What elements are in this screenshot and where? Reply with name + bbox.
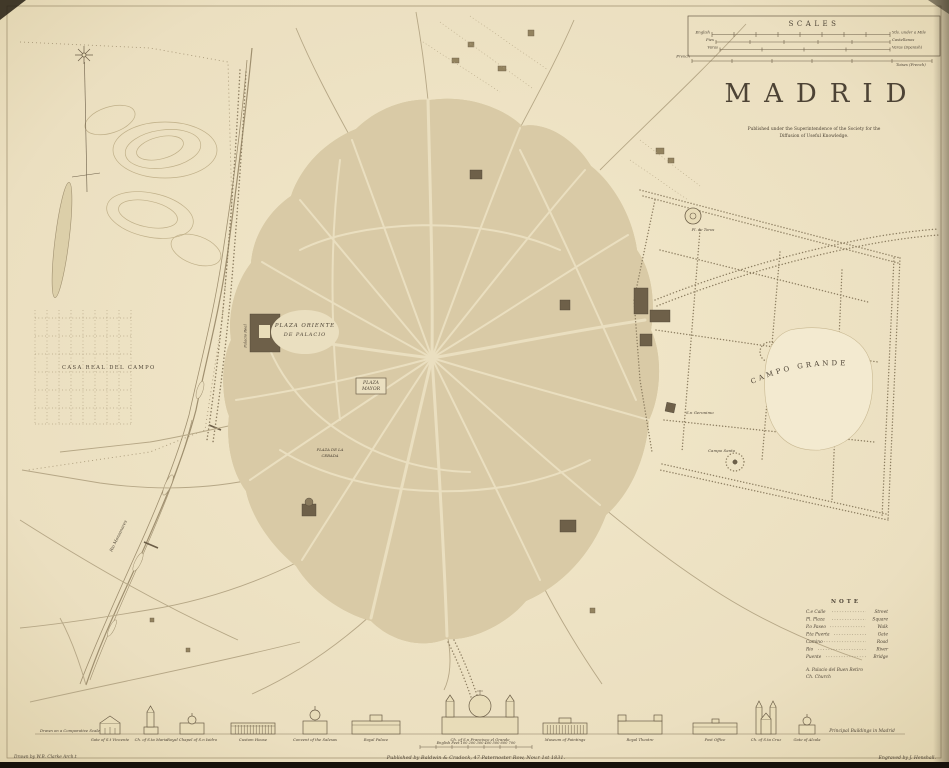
note-meaning-6: Bridge xyxy=(872,655,888,660)
note-abbr-3: P.ta Puerta xyxy=(805,633,830,638)
note-abbr-5: Rio xyxy=(805,648,814,653)
frieze-caption-9: Royal Theatre xyxy=(625,737,654,742)
plaza-mayor-label-2: MAYOR xyxy=(361,386,381,392)
scale-row-left-2: Varas xyxy=(707,45,718,50)
frieze-caption-3: Royal Chapel of S.n Isidro xyxy=(166,737,218,742)
scale-row-left-0: English xyxy=(695,30,711,35)
map-subtitle-1: Published under the Superintendence of t… xyxy=(748,127,881,132)
map-subtitle-2: Diffusion of Useful Knowledge. xyxy=(780,134,849,139)
scale-row-left-1: Pies xyxy=(705,37,714,42)
madrid-map: CASA REAL DEL CAMPO Rio Manzanares xyxy=(0,0,949,768)
frieze-caption-10: Post Office xyxy=(704,737,727,742)
map-sheet: CASA REAL DEL CAMPO Rio Manzanares xyxy=(0,0,949,768)
scale-row-right-1: Castellanos xyxy=(892,37,914,42)
note-abbr-2: P.o Paseo xyxy=(805,625,826,630)
scale-row-right-3: Toises (French) xyxy=(896,62,926,67)
note-abbr-4: Camino xyxy=(806,640,823,645)
photo-shadow-right xyxy=(933,0,949,768)
plaza-de-toros-ring xyxy=(685,208,701,224)
frieze-caption-2: Ch. of S.ta Maria xyxy=(135,737,169,742)
scales-title: SCALES xyxy=(789,20,840,28)
note-abbr-6: Puente xyxy=(805,655,822,660)
scale-row-right-0: Yds. under a Mile xyxy=(892,30,927,35)
frieze-building-4 xyxy=(231,723,275,734)
plaza-cebada-label-2: CEBADA xyxy=(322,453,339,458)
note-meaning-3: Gate xyxy=(878,633,889,638)
note-extra-2: Ch. Church xyxy=(806,675,831,680)
plaza-cebada-label-1: PLAZA DE LA xyxy=(316,447,344,452)
imprint: Published by Baldwin & Cradock, 47 Pater… xyxy=(386,755,566,761)
frieze-end-label: Principal Buildings in Madrid xyxy=(828,729,895,734)
note-meaning-0: Street xyxy=(874,610,888,615)
palacio-real-label: Palacio Real xyxy=(243,323,248,348)
frieze-caption-4: Custom House xyxy=(239,737,268,742)
photo-edge-bottom xyxy=(0,762,949,768)
note-extra-1: A. Palacio del Buen Retiro xyxy=(805,668,863,673)
scale-row-right-2: Varas (Spanish) xyxy=(892,45,923,50)
frieze-caption-5: Convent of the Salesas xyxy=(293,737,337,742)
note-title: NOTE xyxy=(831,599,861,605)
note-meaning-1: Square xyxy=(872,618,888,623)
casa-real-del-campo-label: CASA REAL DEL CAMPO xyxy=(62,365,156,371)
note-meaning-2: Walk xyxy=(877,625,888,630)
engraved-by: Engraved by J. Henshall. xyxy=(878,755,937,761)
san-geronimo-label: S.n Geronimo xyxy=(686,410,714,415)
plaza-oriente-label-1: PLAZA ORIENTE xyxy=(274,323,335,329)
note-abbr-0: C.e Calle xyxy=(806,610,826,615)
plaza-mayor-label-1: PLAZA xyxy=(362,380,380,386)
note-meaning-5: River xyxy=(875,648,889,653)
frieze-scale-text: English Feet 100 200 300 400 500 600 700 xyxy=(436,741,517,745)
map-title: MADRID xyxy=(725,79,920,109)
note-abbr-1: Pl. Plaza xyxy=(805,618,825,623)
frieze-intro-note: Drawn on a Comparative Scale xyxy=(39,728,101,733)
note-meaning-4: Road xyxy=(876,640,888,645)
scale-row-left-3: French xyxy=(675,54,690,59)
campo-santo-label: Campo Santo xyxy=(708,448,736,453)
frieze-caption-1: Gate of S.t Vincente xyxy=(91,737,130,742)
frieze-caption-11: Ch. of S.ta Cruz xyxy=(751,737,782,742)
plaza-oriente-label-2: DE PALACIO xyxy=(283,332,327,338)
plaza-de-toros-label: Pl. de Toros xyxy=(691,227,715,232)
campo-grande-lawn xyxy=(765,328,873,450)
drawn-by: Drawn by W.B. Clarke Arch.t xyxy=(13,755,77,760)
frieze-caption-8: Museum of Paintings xyxy=(544,737,586,742)
frieze-caption-12: Gate of Alcala xyxy=(794,737,822,742)
frieze-caption-6: Royal Palace xyxy=(363,737,389,742)
